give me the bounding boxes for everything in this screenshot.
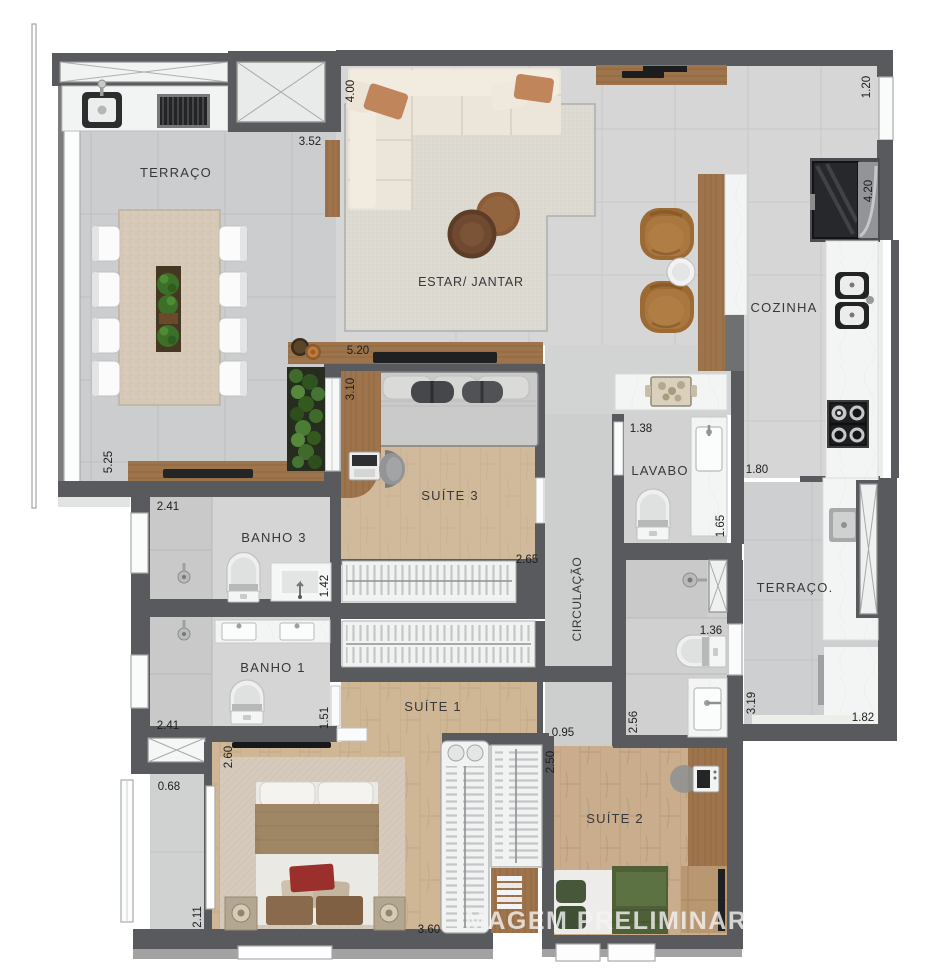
svg-text:ESTAR/ JANTAR: ESTAR/ JANTAR: [418, 275, 524, 289]
svg-text:1.42: 1.42: [319, 575, 331, 597]
svg-text:BANHO 1: BANHO 1: [240, 660, 305, 675]
svg-text:4.00: 4.00: [345, 80, 357, 102]
svg-text:1.38: 1.38: [630, 423, 652, 435]
svg-text:3.52: 3.52: [299, 136, 321, 148]
svg-text:2.60: 2.60: [223, 746, 235, 768]
svg-text:1.80: 1.80: [746, 464, 768, 476]
svg-text:5.25: 5.25: [103, 451, 115, 473]
svg-text:SUÍTE 3: SUÍTE 3: [421, 488, 479, 503]
svg-text:2.50: 2.50: [545, 751, 557, 773]
svg-text:IMAGEM PRELIMINAR: IMAGEM PRELIMINAR: [457, 907, 748, 935]
svg-text:1.65: 1.65: [715, 515, 727, 537]
svg-text:3.19: 3.19: [746, 692, 758, 714]
svg-text:5.20: 5.20: [347, 345, 369, 357]
svg-text:COZINHA: COZINHA: [751, 300, 818, 315]
svg-text:LAVABO: LAVABO: [631, 463, 688, 478]
svg-text:BANHO 3: BANHO 3: [241, 530, 306, 545]
svg-text:2.41: 2.41: [157, 501, 179, 513]
svg-text:4.20: 4.20: [863, 180, 875, 202]
svg-text:1.82: 1.82: [852, 712, 874, 724]
svg-text:0.95: 0.95: [552, 727, 574, 739]
svg-text:CIRCULAÇÃO: CIRCULAÇÃO: [570, 557, 584, 642]
svg-text:3.10: 3.10: [345, 378, 357, 400]
svg-text:1.20: 1.20: [861, 76, 873, 98]
svg-text:1.51: 1.51: [319, 707, 331, 729]
svg-text:1.36: 1.36: [700, 625, 722, 637]
svg-text:SUÍTE 1: SUÍTE 1: [404, 699, 462, 714]
svg-text:0.68: 0.68: [158, 781, 180, 793]
svg-text:3.60: 3.60: [418, 924, 440, 936]
svg-text:2.11: 2.11: [192, 906, 204, 928]
svg-text:TERRAÇO.: TERRAÇO.: [757, 580, 834, 595]
svg-text:2.41: 2.41: [157, 720, 179, 732]
svg-text:2.56: 2.56: [628, 711, 640, 733]
svg-text:2.65: 2.65: [516, 554, 538, 566]
svg-text:TERRAÇO: TERRAÇO: [140, 165, 212, 180]
svg-text:SUÍTE 2: SUÍTE 2: [586, 811, 644, 826]
